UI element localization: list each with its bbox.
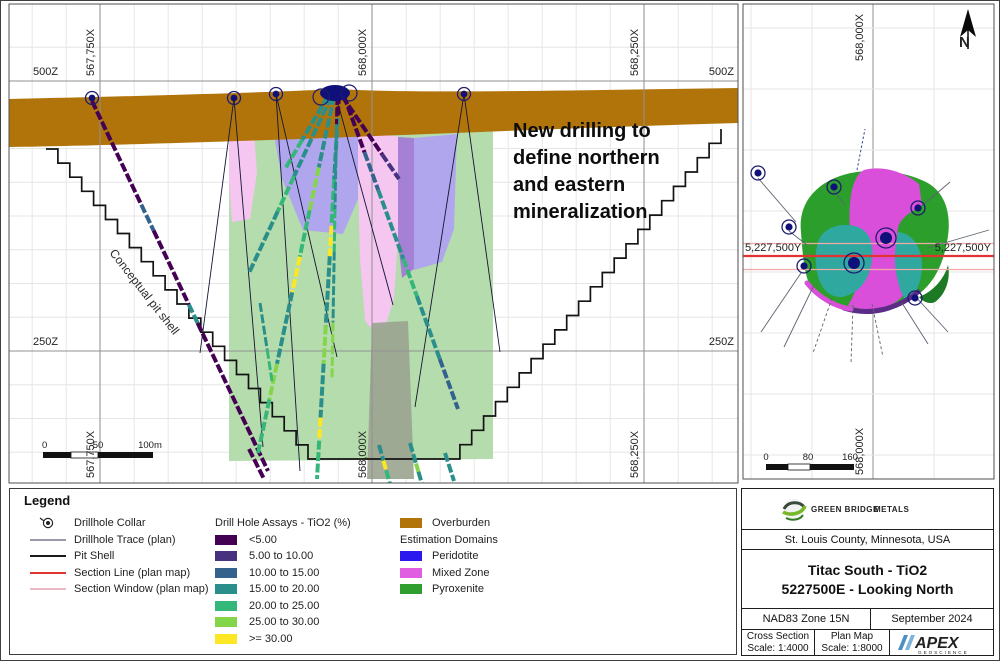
legend-item-pit-shell-symbol [26, 555, 70, 557]
legend-assay-label: 15.00 to 20.00 [237, 583, 319, 595]
legend-assay-item: 25.00 to 30.00 [215, 614, 351, 631]
legend-assay-swatch [215, 617, 237, 627]
legend-item-pit-shell-label: Pit Shell [70, 550, 114, 562]
drillhole-collar-dot [89, 95, 96, 102]
trace-assay-segment [383, 461, 386, 471]
plan-scalebar-80: 80 [803, 452, 814, 463]
legend-item-drillhole-collar: Drillhole Collar [26, 515, 209, 532]
report-figure-page: 567,750X 568,000X 568,250X 567,750X 568,… [0, 0, 1000, 661]
z-label-250-right: 250Z [709, 336, 734, 348]
drillhole-collar-dot [830, 183, 837, 190]
apex-logo: APEX GEOSCIENCE [889, 630, 993, 656]
trace-assay-segment [319, 418, 320, 441]
plan-y-label-left: 5,227,500Y [745, 242, 802, 254]
scalebar-segment [98, 452, 153, 458]
xsec-top-label-567750: 567,750X [85, 28, 97, 76]
legend-domain-swatch [400, 568, 422, 578]
annotation-new-drilling: New drilling to define northern and east… [513, 118, 688, 226]
trace-assay-segment [332, 179, 335, 225]
cross-section-scale-value: Scale: 1:4000 [742, 643, 814, 655]
z-label-500-left: 500Z [33, 66, 58, 78]
xsec-bottom-label-568000: 568,000X [357, 430, 369, 478]
plan-y-label-right: 5,227,500Y [935, 242, 992, 254]
legend-assay-item: 20.00 to 25.00 [215, 598, 351, 615]
legend-line-swatch [30, 555, 66, 557]
plan-map-scale-value: Scale: 1:8000 [815, 643, 889, 655]
cross-section-scalebar [43, 452, 153, 458]
scalebar-segment [810, 464, 854, 470]
plan-scalebar-160: 160 [842, 452, 858, 463]
greenbridge-name: GREEN BRIDGE [811, 505, 879, 514]
drillhole-collar-dot [461, 91, 468, 98]
trace-assay-segment [335, 124, 337, 209]
scalebar-segment [788, 464, 810, 470]
legend-assay-swatch [215, 634, 237, 644]
date-label: September 2024 [870, 609, 993, 629]
legend-item-drillhole-trace-plan: Drillhole Trace (plan) [26, 532, 209, 549]
plan-trace [758, 178, 796, 222]
legend-domain-label: Mixed Zone [422, 567, 489, 579]
plan-map-scale-label: Plan Map [815, 631, 889, 643]
z-label-500-right: 500Z [709, 66, 734, 78]
legend-title: Legend [24, 493, 736, 508]
legend-assay-label: 5.00 to 10.00 [237, 550, 313, 562]
plan-trace [761, 273, 801, 332]
legend-domain-column: OverburdenEstimation DomainsPeridotiteMi… [400, 515, 498, 598]
location-line: St. Louis County, Minnesota, USA [742, 530, 993, 550]
plan-trace-dashed [813, 298, 832, 353]
trace-assay-segment [154, 231, 189, 305]
plan-trace [784, 285, 814, 347]
z-label-250-left: 250Z [33, 336, 58, 348]
drillhole-collar-dot [231, 95, 238, 102]
drillhole-collar-dot [800, 262, 807, 269]
legend-assay-swatch [215, 568, 237, 578]
north-arrow-icon: N [959, 9, 976, 51]
plan-trace-dashed [851, 305, 853, 364]
domain-peridotite-edge [398, 137, 414, 278]
drillhole-collar-dot [848, 257, 860, 269]
xsec-top-label-568250: 568,250X [629, 28, 641, 76]
scalebar-segment [43, 452, 71, 458]
legend-assay-label: 25.00 to 30.00 [237, 616, 319, 628]
scalebar-segment [766, 464, 788, 470]
legend-item-section-window-plan-map-symbol [26, 588, 70, 590]
domain-gray-band [367, 321, 414, 479]
legend-item-overburden: Overburden [400, 515, 498, 532]
plan-scalebar [766, 464, 854, 470]
xsec-top-label-568000: 568,000X [357, 28, 369, 76]
drillhole-collar-dot [914, 204, 921, 211]
figure-title: Titac South - TiO2 [742, 562, 993, 578]
legend-assay-swatch [215, 535, 237, 545]
drillhole-collar-icon [31, 516, 65, 530]
xsec-scalebar-0: 0 [42, 440, 47, 451]
trace-assay-segment [332, 322, 333, 379]
legend-assay-label: 10.00 to 15.00 [237, 567, 319, 579]
drillhole-collar-dot [785, 223, 792, 230]
plan-scalebar-0: 0 [763, 452, 768, 463]
domain-mixedzone-window-center [358, 134, 398, 329]
legend-item-section-line-plan-map-label: Section Line (plan map) [70, 567, 190, 579]
legend-domain-item: Peridotite [400, 548, 498, 565]
legend-item-drillhole-trace-plan-symbol [26, 539, 70, 541]
legend-symbol-rows: Drillhole CollarDrillhole Trace (plan)Pi… [26, 515, 209, 598]
legend-domain-swatch [400, 551, 422, 561]
legend-domain-label: Peridotite [422, 550, 478, 562]
legend-domain-label: Pyroxenite [422, 583, 484, 595]
drillhole-collar-cluster [320, 85, 350, 101]
drillhole-collar-dot [273, 91, 280, 98]
xsec-bottom-label-567750: 567,750X [85, 430, 97, 478]
legend-assay-item: 15.00 to 20.00 [215, 581, 351, 598]
legend-item-section-line-plan-map: Section Line (plan map) [26, 565, 209, 582]
legend-item-drillhole-collar-label: Drillhole Collar [70, 517, 146, 529]
trace-assay-segment [330, 226, 332, 257]
legend-assay-label: >= 30.00 [237, 633, 292, 645]
figure-subtitle: 5227500E - Looking North [742, 581, 993, 597]
drillhole-collar-dot [880, 232, 892, 244]
greenbridge-logo: GREEN BRIDGE METALS [742, 489, 993, 530]
legend-assay-label: 20.00 to 25.00 [237, 600, 319, 612]
xsec-bottom-label-568250: 568,250X [629, 430, 641, 478]
legend-domain-item: Pyroxenite [400, 581, 498, 598]
legend-item-drillhole-trace-plan-label: Drillhole Trace (plan) [70, 534, 175, 546]
xsec-scalebar-50: 50 [93, 440, 104, 451]
legend-domain-swatch [400, 584, 422, 594]
plan-trace [902, 303, 928, 344]
trace-assay-segment [317, 441, 319, 479]
legend-assay-column: Drill Hole Assays - TiO2 (%)<5.005.00 to… [215, 515, 351, 647]
legend-assay-label: <5.00 [237, 534, 277, 546]
legend-assay-swatch [215, 551, 237, 561]
trace-assay-segment [141, 205, 153, 231]
legend-assay-header: Drill Hole Assays - TiO2 (%) [215, 515, 351, 532]
legend-domain-item: Mixed Zone [400, 565, 498, 582]
legend-assay-item: 10.00 to 15.00 [215, 565, 351, 582]
legend-item-section-line-plan-map-symbol [26, 572, 70, 574]
legend-assay-item: 5.00 to 10.00 [215, 548, 351, 565]
legend-assay-swatch [215, 584, 237, 594]
plan-domains [801, 168, 949, 311]
conceptual-pit-shell-label: Conceptual pit shell [107, 246, 183, 337]
legend-overburden-swatch [400, 518, 422, 528]
drillhole-collar-dot [754, 169, 761, 176]
legend-item-section-window-plan-map-label: Section Window (plan map) [70, 583, 209, 595]
legend-line-swatch [30, 572, 66, 574]
greenbridge-suffix: METALS [874, 505, 909, 514]
legend-panel: Legend Drillhole CollarDrillhole Trace (… [9, 488, 737, 655]
datum-label: NAD83 Zone 15N [742, 609, 870, 629]
legend-item-section-window-plan-map: Section Window (plan map) [26, 581, 209, 598]
xsec-scalebar-100m: 100m [138, 440, 162, 451]
apex-sub: GEOSCIENCE [918, 650, 969, 655]
legend-assay-item: <5.00 [215, 532, 351, 549]
legend-assay-item: >= 30.00 [215, 631, 351, 648]
drillhole-collar-dot [911, 294, 918, 301]
legend-assay-swatch [215, 601, 237, 611]
trace-assay-segment [418, 472, 422, 484]
north-label: N [959, 34, 970, 51]
legend-item-pit-shell: Pit Shell [26, 548, 209, 565]
cross-section-scale-label: Cross Section [742, 631, 814, 643]
legend-item-drillhole-collar-symbol [26, 516, 70, 530]
legend-line-swatch [30, 539, 66, 541]
trace-assay-segment [189, 305, 198, 324]
legend-line-swatch [30, 588, 66, 590]
plan-top-label-568000: 568,000X [854, 13, 866, 61]
title-block: GREEN BRIDGE METALS St. Louis County, Mi… [741, 488, 994, 656]
trace-assay-segment [416, 464, 418, 472]
legend-overburden-label: Overburden [422, 517, 490, 529]
legend-domains-header: Estimation Domains [400, 532, 498, 549]
